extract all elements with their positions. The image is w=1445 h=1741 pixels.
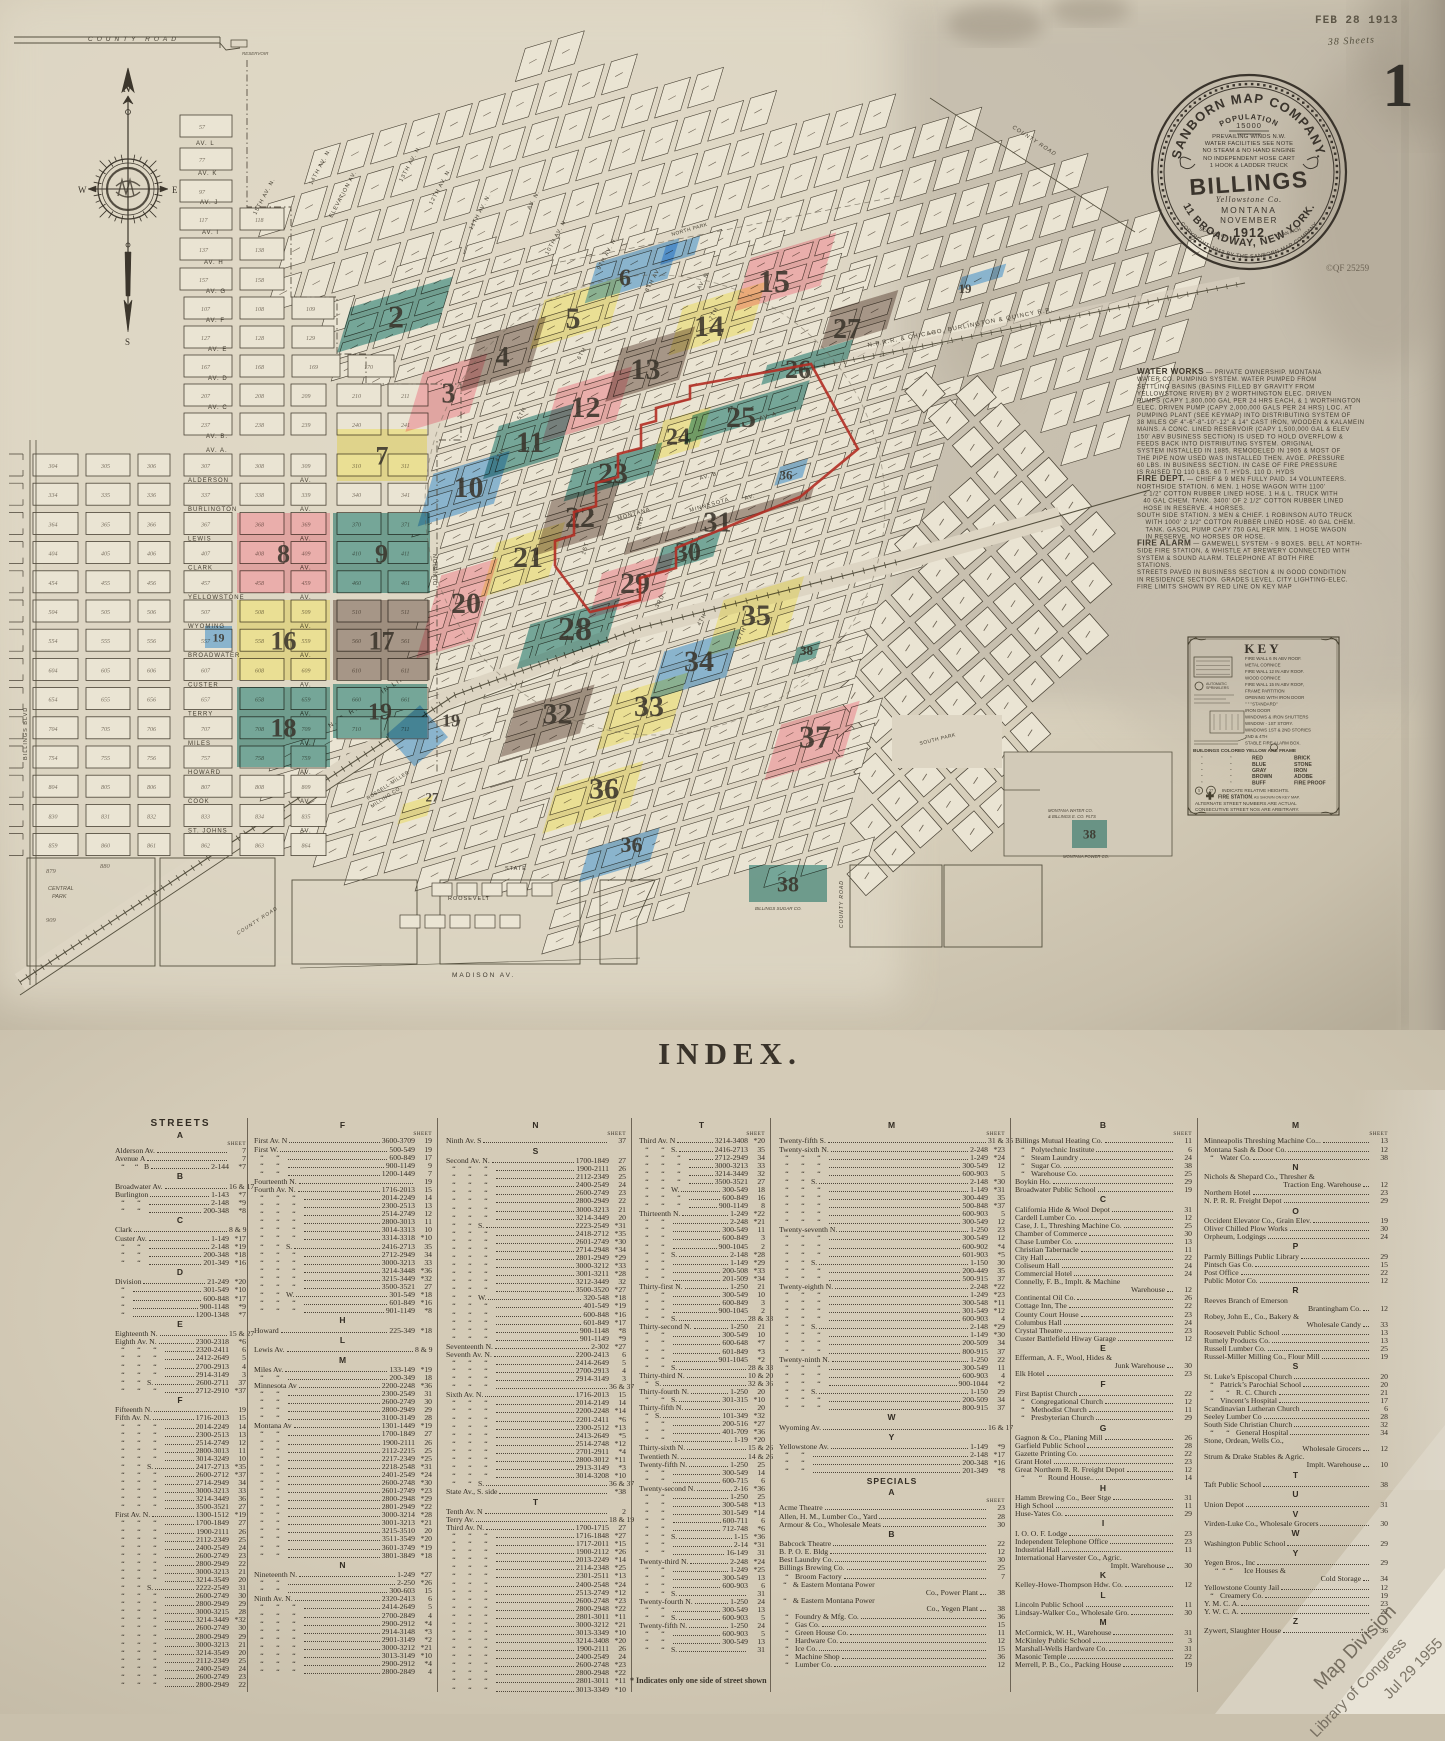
svg-text:OPENING WITH IRON DOOR: OPENING WITH IRON DOOR [1245,695,1304,700]
svg-text:STONE: STONE [1294,762,1312,768]
svg-text:AV.: AV. [300,770,312,776]
svg-text:10: 10 [454,471,484,504]
svg-text:NOVEMBER: NOVEMBER [1220,216,1278,225]
svg-text:755: 755 [101,756,110,762]
svg-text:909: 909 [46,917,57,924]
svg-text:WITH 1000' 2 1/2" COTTON RUBBE: WITH 1000' 2 1/2" COTTON RUBBER LINED HO… [1137,520,1355,526]
svg-text:862: 862 [201,844,210,850]
svg-text:833: 833 [201,814,210,820]
svg-text:PARK: PARK [52,894,67,900]
svg-text:FIRE LIMITS SHOWN BY RED LI: FIRE LIMITS SHOWN BY RED LINE ON KEY MAP [1137,585,1292,591]
svg-text:507: 507 [201,610,211,616]
svg-text:CLARK: CLARK [188,566,213,572]
svg-text:BURLINGTON: BURLINGTON [188,507,237,513]
svg-text:455: 455 [101,580,110,587]
svg-text:108: 108 [255,307,264,313]
svg-text:GRAY: GRAY [1252,768,1267,774]
svg-text:PUMPS (CAPY 1,800,000 GAL PER: PUMPS (CAPY 1,800,000 GAL PER 24 HRS EAC… [1137,399,1361,405]
svg-text:138: 138 [255,248,264,254]
svg-text:STABLE FIRE ALARM BOX.: STABLE FIRE ALARM BOX. [1245,741,1301,746]
svg-text:40 GAL CHEM. TANK. 3400' OF: 40 GAL CHEM. TANK. 3400' OF 2 1/2" COTTO… [1137,499,1344,505]
svg-text:AV. D: AV. D [208,376,228,382]
svg-text:706: 706 [147,727,156,733]
svg-text:BUFF: BUFF [1252,780,1266,786]
svg-text:1: 1 [1383,52,1414,120]
svg-text:4: 4 [496,342,510,373]
svg-text:77: 77 [199,158,206,164]
svg-text:169: 169 [309,365,318,371]
svg-text:60 LBS. IN BUSINESS SECTION.: 60 LBS. IN BUSINESS SECTION. IN CASE OF … [1137,463,1338,469]
svg-text:ROOSEVELT: ROOSEVELT [448,896,490,902]
svg-text:864: 864 [302,843,311,850]
svg-text:830: 830 [49,814,58,820]
svg-text:860: 860 [101,844,110,850]
svg-text:CONSECUTIVE STREET NOS ARE ARB: CONSECUTIVE STREET NOS ARE ARBITRARY. [1195,807,1299,812]
svg-text:AV. C: AV. C [208,405,228,411]
svg-text:BUILDINGS COLORED YELLOW AR: BUILDINGS COLORED YELLOW ARE FRAME [1193,748,1297,754]
svg-text:RED: RED [1252,756,1263,762]
svg-text:880: 880 [100,863,111,870]
svg-text:107: 107 [201,307,211,313]
svg-text:129: 129 [306,336,315,342]
svg-text:337: 337 [200,493,211,499]
svg-text:339: 339 [301,493,311,499]
svg-text:MONTANA WATER CO.: MONTANA WATER CO. [1048,808,1093,813]
svg-text:407: 407 [201,551,211,558]
svg-text:307: 307 [200,464,211,470]
svg-text:805: 805 [101,785,110,791]
svg-text:AV.: AV. [300,507,312,513]
svg-text:167: 167 [201,365,211,371]
svg-text:COUNTY ROAD: COUNTY ROAD [88,36,180,43]
svg-text:FEB 28 1913: FEB 28 1913 [1315,15,1399,27]
svg-text:454: 454 [49,580,58,587]
svg-text:308: 308 [254,464,264,470]
svg-text:705: 705 [101,727,110,733]
svg-text:504: 504 [49,609,58,616]
svg-text:158: 158 [255,278,264,284]
svg-text:WINDOWS 1ST & 2ND STORIES: WINDOWS 1ST & 2ND STORIES [1245,728,1311,733]
svg-text:AV.: AV. [300,828,312,834]
svg-text:WINDOW - 1ST STORY.: WINDOW - 1ST STORY. [1245,721,1293,726]
svg-text:NO STEAM & NO HAND ENGINE: NO STEAM & NO HAND ENGINE [1203,148,1296,154]
svg-text:364: 364 [48,521,58,528]
svg-text:863: 863 [255,844,264,850]
svg-text:656: 656 [147,698,156,704]
svg-text:879: 879 [46,868,57,875]
svg-text:STREETS PAVED IN BUSINESS SE: STREETS PAVED IN BUSINESS SECTION & IN G… [1137,570,1346,576]
svg-text:29: 29 [620,567,650,600]
svg-text:ADOBE: ADOBE [1294,774,1313,780]
svg-text:340: 340 [351,492,361,499]
svg-text:PREVAILING WINDS N.W.: PREVAILING WINDS N.W. [1212,134,1286,140]
svg-text:8: 8 [277,539,290,568]
svg-text:831: 831 [101,814,110,820]
svg-text:306: 306 [146,464,156,470]
svg-text:238: 238 [255,423,264,429]
svg-text:505: 505 [101,610,110,616]
svg-text:27: 27 [833,314,861,345]
svg-text:209: 209 [302,394,311,400]
svg-text:SETTLING BASINS (BASINS FILLED: SETTLING BASINS (BASINS FILLED BY GRAVIT… [1137,384,1315,390]
svg-text:335: 335 [100,493,110,499]
svg-text:19: 19 [959,281,973,296]
svg-text:INDICATE RELATIVE HEIGHTS.: INDICATE RELATIVE HEIGHTS. [1222,788,1289,793]
svg-text:118: 118 [255,218,264,224]
svg-text:14: 14 [694,310,724,343]
svg-text:AV. I: AV. I [202,230,219,236]
svg-text:9: 9 [375,539,388,568]
svg-text:FIRE WALL 6 IN ABV ROOF.: FIRE WALL 6 IN ABV ROOF. [1245,656,1302,661]
svg-text:859: 859 [49,844,58,850]
svg-text:DIVISION: DIVISION [433,553,439,585]
svg-text:BROWN: BROWN [1252,774,1272,780]
svg-text:7: 7 [376,441,389,470]
svg-text:BROADWATER: BROADWATER [188,653,240,659]
svg-text:309: 309 [301,464,311,470]
svg-text:MADISON AV.: MADISON AV. [452,972,515,979]
svg-text:AV.: AV. [300,595,312,601]
svg-text:336: 336 [146,493,156,499]
svg-text:57: 57 [199,125,206,131]
svg-text:& BILLINGS E. CO. PLTS: & BILLINGS E. CO. PLTS [1048,814,1096,819]
svg-text:15: 15 [758,263,790,299]
svg-text:BLUE: BLUE [1252,762,1267,768]
svg-text:36: 36 [621,832,643,857]
svg-text:COUNTY ROAD: COUNTY ROAD [839,880,845,928]
svg-text:832: 832 [147,814,156,820]
svg-text:367: 367 [200,522,211,528]
svg-text:11: 11 [516,426,544,459]
svg-text:835: 835 [302,814,311,820]
svg-text:STATE: STATE [505,866,527,872]
svg-text:456: 456 [147,580,156,587]
svg-text:211: 211 [401,394,410,400]
svg-text:FIRE WALL 12 IN ABV ROOF.: FIRE WALL 12 IN ABV ROOF. [1245,669,1304,674]
svg-text:Yellowstone Co.: Yellowstone Co. [1216,195,1282,204]
svg-text:38: 38 [1083,827,1097,842]
svg-text:MILES: MILES [188,741,211,747]
svg-text:YELLOWSTONE RIVER) BY 2 WORTH: YELLOWSTONE RIVER) BY 2 WORTHINGTON ELEC… [1137,391,1332,397]
svg-text:555: 555 [101,639,110,645]
svg-text:365: 365 [100,522,110,528]
svg-text:19: 19 [213,630,225,644]
svg-text:22: 22 [565,501,595,534]
svg-text:38: 38 [777,871,799,896]
svg-text:15000: 15000 [1236,121,1262,130]
svg-text:RESERVOIR: RESERVOIR [242,51,269,56]
svg-text:457: 457 [201,580,211,587]
svg-text:N: N [122,83,132,95]
svg-text:655: 655 [101,698,110,704]
svg-text:AV. K: AV. K [198,171,217,177]
svg-text:128: 128 [255,336,264,342]
svg-text:IN RESIDENCE SECTION. GRADES: IN RESIDENCE SECTION. GRADES LEVEL. CITY… [1137,577,1348,583]
svg-text:556: 556 [147,639,156,645]
svg-text:657: 657 [201,698,211,704]
svg-text:17: 17 [369,626,395,655]
svg-text:SYSTEM INSTALLED IN 1885, REMO: SYSTEM INSTALLED IN 1885, REMODELED IN 1… [1137,449,1341,455]
svg-text:WATER FACILITIES SEE NOTE: WATER FACILITIES SEE NOTE [1205,141,1293,147]
svg-text:HOWARD: HOWARD [188,770,221,776]
svg-text:HOSE IN RESERVE. 4 HORSES.: HOSE IN RESERVE. 4 HORSES. [1137,506,1245,512]
svg-text:157: 157 [199,278,209,284]
svg-text:405: 405 [101,551,110,558]
svg-text:150' ABV BUSINESS SECTION) IS: 150' ABV BUSINESS SECTION) IS USED TO HO… [1137,434,1343,440]
svg-text:ALDERSON: ALDERSON [188,478,229,484]
svg-text:36: 36 [780,468,794,483]
svg-text:2: 2 [388,299,404,335]
svg-text:STATIONS.: STATIONS. [1137,563,1172,569]
svg-text:BILLINGS SUGAR CO.: BILLINGS SUGAR CO. [755,906,802,911]
svg-text:210: 210 [352,394,361,400]
svg-text:809: 809 [302,785,311,791]
svg-text:305: 305 [100,464,110,470]
svg-text:METAL CORNICE: METAL CORNICE [1245,663,1281,668]
svg-text:170: 170 [364,365,373,371]
svg-text:SPRINKLERS: SPRINKLERS [1206,686,1229,690]
svg-text:27: 27 [426,790,440,805]
svg-text:W: W [78,185,87,195]
svg-text:807: 807 [201,785,211,791]
svg-text:FIRE PROOF: FIRE PROOF [1294,780,1326,786]
svg-text:304: 304 [48,463,58,470]
svg-text:861: 861 [147,844,156,850]
svg-text:YELLOWSTONE: YELLOWSTONE [188,595,245,601]
svg-text:AV. J: AV. J [200,200,218,206]
svg-text:605: 605 [101,668,110,674]
svg-text:19: 19 [368,700,392,726]
svg-text:756: 756 [147,756,156,762]
svg-text:PUMPING PLANT (SEE KEYMAP) INT: PUMPING PLANT (SEE KEYMAP) INTO DISTRIBU… [1137,413,1351,419]
svg-text:341: 341 [400,492,410,499]
svg-text:12: 12 [571,391,601,424]
svg-text:117: 117 [199,218,209,224]
svg-text:E: E [172,185,178,195]
svg-text:SOUTH SIDE STATION. 3 MEN & C: SOUTH SIDE STATION. 3 MEN & CHIEF. 1 ROB… [1137,513,1352,519]
svg-text:AV.: AV. [300,478,312,484]
svg-text:406: 406 [147,551,156,558]
svg-text:MONTANA POWER CO.: MONTANA POWER CO. [1063,854,1109,859]
svg-text:IRON DOOR: IRON DOOR [1245,708,1270,713]
svg-text:ALTERNATE STREET NUMBERS ARE A: ALTERNATE STREET NUMBERS ARE ACTUAL [1195,801,1297,806]
svg-text:AV. E: AV. E [208,347,227,353]
svg-text:NO INDEPENDENT HOSE CART: NO INDEPENDENT HOSE CART [1203,156,1295,162]
svg-text:2 1/2" COTTON RUBBER LINED HO: 2 1/2" COTTON RUBBER LINED HOSE. 1 H.& L… [1137,492,1338,498]
svg-text:754: 754 [49,755,58,762]
svg-text:334: 334 [48,492,58,499]
svg-text:607: 607 [201,668,211,674]
svg-text:MAINS. A CONC. LINED RESERVO: MAINS. A CONC. LINED RESERVOIR (CAPY 1,5… [1137,427,1350,433]
svg-text:757: 757 [201,756,211,762]
svg-text:WINDOWS & IRON SHUTTERS: WINDOWS & IRON SHUTTERS [1245,715,1308,720]
svg-text:IRON: IRON [1294,768,1307,774]
svg-text:THE PIPE NOW USED WAS INSTALL: THE PIPE NOW USED WAS INSTALLED THEN. AV… [1137,456,1345,462]
svg-text:ST. JOHNS: ST. JOHNS [188,828,228,834]
svg-text:BILLINGS BLVD: BILLINGS BLVD [23,707,29,760]
svg-text:MONTANA: MONTANA [1221,205,1277,215]
svg-text:35: 35 [741,599,771,632]
svg-text:237: 237 [201,423,211,429]
svg-text:FRAME PARTITION: FRAME PARTITION [1245,689,1285,694]
svg-text:WATER CO. PUMPING SYSTEM. WATE: WATER CO. PUMPING SYSTEM. WATER PUMPED F… [1137,377,1317,383]
svg-text:5: 5 [566,302,581,335]
svg-text:AV.: AV. [300,799,312,805]
svg-text:28: 28 [558,611,592,648]
svg-text:NORTHSIDE STATION. 6 MEN. 1: NORTHSIDE STATION. 6 MEN. 1 HOSE WAGON W… [1137,484,1326,490]
svg-text:137: 137 [199,248,209,254]
svg-text:2ND & 4TH: 2ND & 4TH [1245,734,1267,739]
svg-text:FIRE WALL 15 IN ABV ROOF,: FIRE WALL 15 IN ABV ROOF, [1245,682,1304,687]
svg-text:834: 834 [255,813,264,820]
svg-text:366: 366 [146,522,156,528]
svg-text:18: 18 [271,713,297,742]
svg-text:AV. L: AV. L [196,141,215,147]
svg-text:97: 97 [199,190,206,196]
svg-text:SIDE FIRE STATION, & WHISTLE: SIDE FIRE STATION, & WHISTLE AT BREWERY … [1137,549,1350,555]
svg-text:127: 127 [201,336,211,342]
svg-text:404: 404 [49,551,58,558]
svg-text:804: 804 [49,784,58,791]
svg-text:37: 37 [799,719,831,755]
svg-text:LEWIS: LEWIS [188,536,212,542]
svg-text:554: 554 [49,638,58,645]
svg-text:808: 808 [255,785,264,791]
svg-text:CUSTER: CUSTER [188,682,219,688]
svg-text:25: 25 [726,401,756,434]
svg-text:109: 109 [306,307,315,313]
svg-text:506: 506 [147,610,156,616]
svg-text:AV. B.: AV. B. [206,434,228,440]
svg-text:208: 208 [255,394,264,400]
svg-text:26: 26 [785,355,811,384]
svg-text:SYSTEM & SOUND ALARM. TELEP: SYSTEM & SOUND ALARM. TELEPHONE AT BOTH … [1137,556,1314,562]
svg-text:23: 23 [598,457,628,490]
svg-text:ELEC. DRIVEN PUMP (CAPY 2,000: ELEC. DRIVEN PUMP (CAPY 2,000,000 GALS P… [1137,406,1353,412]
svg-text:16: 16 [271,626,297,655]
svg-text:" " "STANDARD": " " "STANDARD" [1245,702,1278,707]
svg-text:19: 19 [442,711,460,731]
svg-text:38 MILES OF 4"-6"-8"-10"-12" &: 38 MILES OF 4"-6"-8"-10"-12" & 14" CAST … [1137,420,1364,426]
svg-text:TERRY: TERRY [188,712,213,718]
svg-text:207: 207 [201,394,211,400]
svg-text:240: 240 [352,422,361,429]
svg-text:707: 707 [201,727,211,733]
svg-text:FEEDS BACK INTO DISTRIBUTING: FEEDS BACK INTO DISTRIBUTING SYSTEM. ORI… [1137,442,1314,448]
svg-text:AV. F: AV. F [206,318,225,324]
svg-text:WOOD CORNICE: WOOD CORNICE [1245,676,1281,681]
svg-text:S: S [125,337,130,347]
svg-text:38: 38 [800,643,814,658]
svg-text:AV. A.: AV. A. [206,448,228,454]
svg-text:606: 606 [147,668,156,674]
svg-text:AV. G: AV. G [206,289,226,295]
svg-text:239: 239 [302,423,311,429]
svg-text:704: 704 [49,726,58,733]
svg-text:338: 338 [254,493,264,499]
svg-text:AV. H: AV. H [204,260,224,266]
svg-text:654: 654 [49,697,58,704]
svg-text:20: 20 [451,587,481,620]
svg-text:©QF 25259: ©QF 25259 [1326,263,1370,273]
svg-text:TANK. GASOL PUMP CAPY 750 GAL: TANK. GASOL PUMP CAPY 750 GAL PER MIN. 1… [1137,527,1346,533]
svg-text:168: 168 [255,365,264,371]
svg-text:KEY: KEY [1244,641,1281,656]
svg-text:13: 13 [631,353,661,386]
svg-text:604: 604 [49,667,58,674]
svg-text:BRICK: BRICK [1294,756,1311,762]
svg-text:COOK: COOK [188,799,210,805]
svg-text:36: 36 [589,772,619,805]
svg-text:806: 806 [147,785,156,791]
svg-text:CENTRAL: CENTRAL [48,886,74,892]
svg-text:6: 6 [619,266,631,292]
